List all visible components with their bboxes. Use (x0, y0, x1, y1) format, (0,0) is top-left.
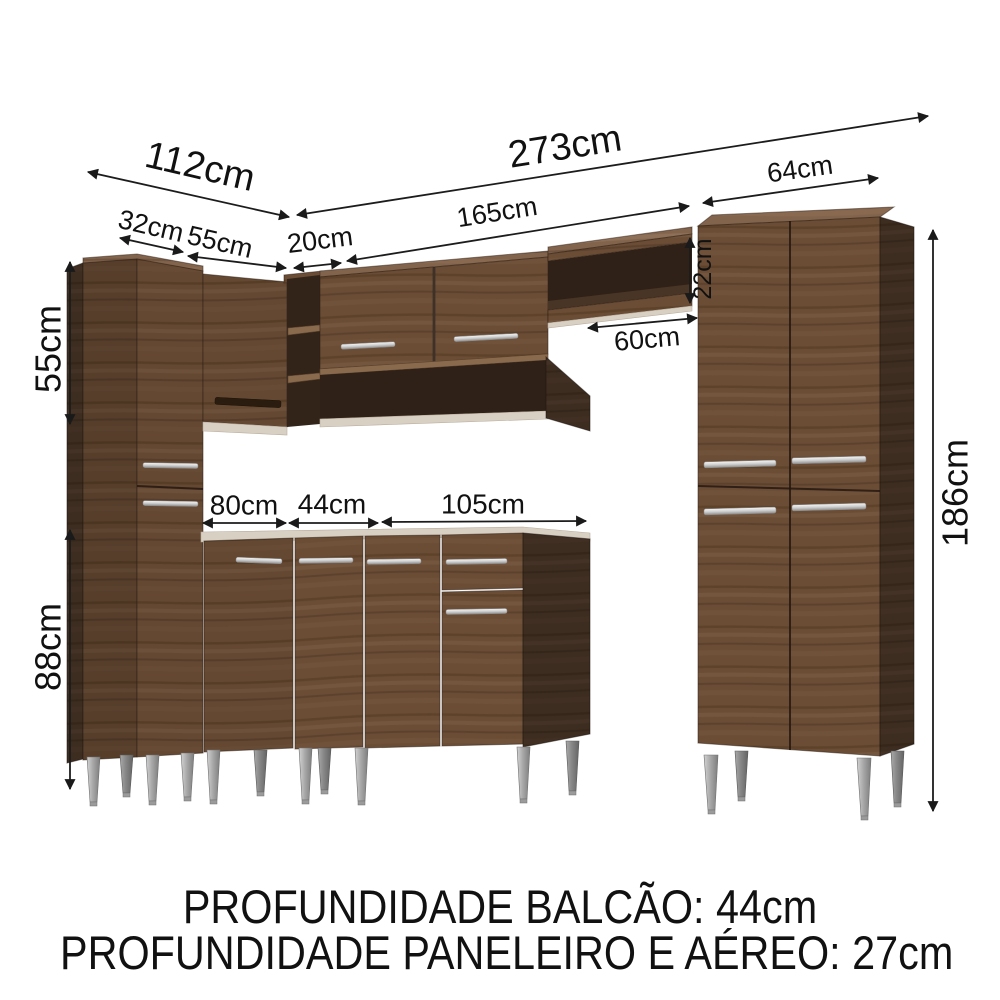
shelf-column-interior (287, 275, 320, 427)
balcao-handle-4 (446, 608, 507, 614)
depth-note-balcao: PROFUNDIDADE BALCÃO: 44cm (60, 884, 940, 930)
label-273cm: 273cm (505, 117, 624, 176)
label-32cm: 32cm (115, 204, 186, 248)
aereo-right-side-panel (546, 357, 590, 431)
paneleiro-side-panel (880, 217, 914, 756)
balcao-handle-2 (299, 558, 353, 564)
base-cabinet-balcao (201, 527, 590, 805)
balcao-drawer-handle (446, 558, 507, 564)
label-165cm: 165cm (455, 191, 540, 233)
balcao-side-panel (523, 533, 590, 747)
label-80cm: 80cm (210, 490, 278, 521)
balcao-legs (207, 741, 579, 805)
tall-cabinet-paneleiro (698, 207, 914, 820)
left-cabinet-lower-handle (143, 501, 198, 507)
depth-note: PROFUNDIDADE BALCÃO: 44cm PROFUNDIDADE P… (60, 884, 940, 976)
balcao-door-3 (365, 535, 440, 748)
balcao-handle-3 (367, 559, 421, 565)
tall-corner-cabinet-left (67, 254, 203, 806)
left-cabinet-legs (87, 753, 194, 806)
arrow-20cm (294, 263, 341, 268)
aereo-door-right (435, 257, 548, 362)
label-88cm: 88cm (28, 603, 69, 691)
product-dimension-diagram: 112cm 273cm 32cm 55cm 20cm 165cm 64cm 22… (0, 0, 1000, 1000)
balcao-corner-door (204, 538, 293, 752)
arrow-105cm (382, 521, 586, 522)
label-44cm: 44cm (298, 489, 366, 520)
left-cabinet-front-panel (83, 259, 137, 760)
bridge-shelf (548, 227, 692, 328)
balcao-door-2 (295, 536, 363, 749)
left-cabinet-upper-handle (143, 463, 198, 469)
depth-note-paneleiro-aereo: PROFUNDIDADE PANELEIRO E AÉREO: 27cm (60, 930, 940, 976)
left-cabinet-door-panel (137, 259, 203, 757)
diagram-canvas: 112cm 273cm 32cm 55cm 20cm 165cm 64cm 22… (0, 0, 1000, 1000)
label-105cm: 105cm (441, 489, 525, 520)
label-55cm-left: 55cm (28, 305, 69, 393)
open-shelf-column (284, 271, 322, 427)
aereo-door-left (320, 267, 433, 369)
label-186cm: 186cm (935, 439, 976, 547)
corner-wall-cabinet (203, 274, 287, 435)
label-22cm: 22cm (689, 238, 717, 299)
paneleiro-legs (704, 751, 904, 820)
label-112cm: 112cm (141, 134, 259, 200)
label-20cm: 20cm (285, 221, 354, 259)
label-60cm: 60cm (613, 321, 681, 357)
label-64cm: 64cm (765, 150, 835, 189)
